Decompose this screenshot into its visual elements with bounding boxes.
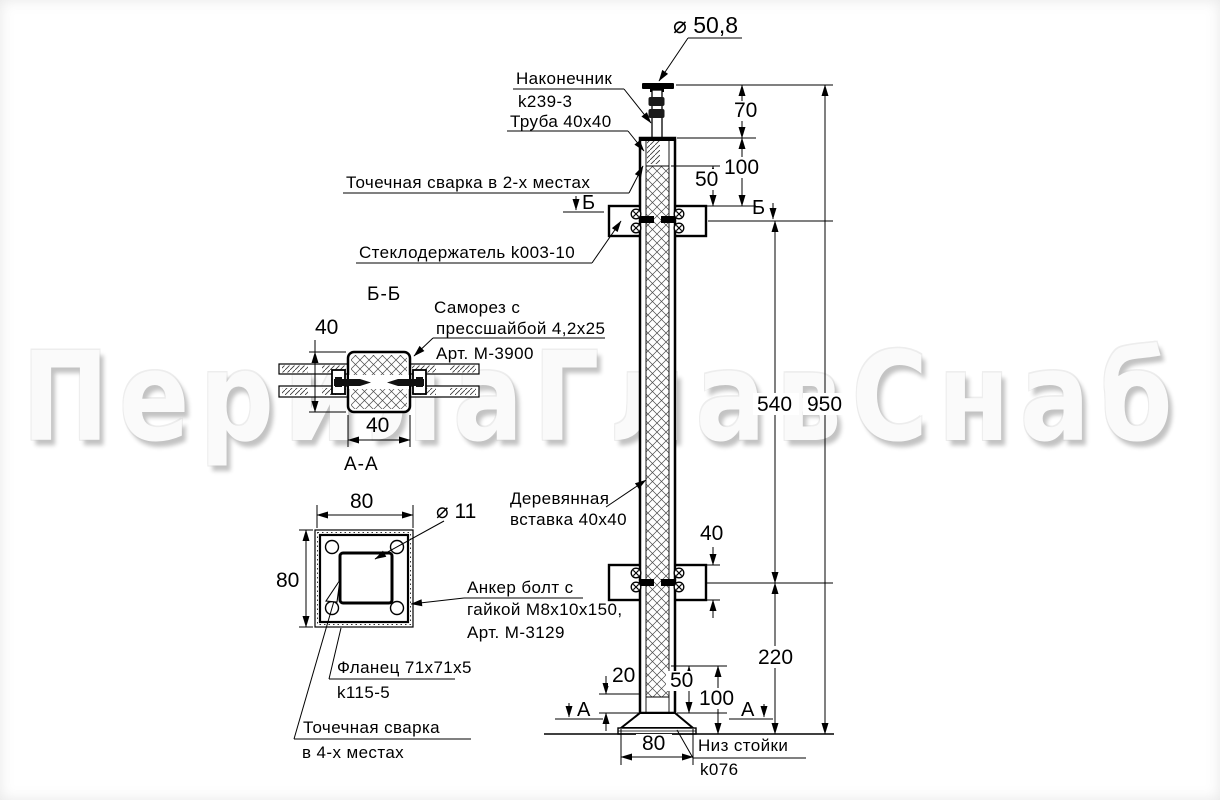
a-marker-right: А [741, 699, 755, 721]
callout-anchor-2: гайкой М8x10x150, [467, 600, 623, 619]
callout-spot-weld-2: Точечная сварка в 2-х местах [346, 173, 590, 192]
wooden-insert [647, 166, 669, 697]
callout-screw-2: прессшайбой 4,2x25 [436, 319, 605, 338]
bb-dim-40-horizontal: 40 [366, 414, 389, 437]
knurled-ring [649, 97, 665, 106]
weld-hatch [647, 141, 660, 164]
aa-dim-80-top: 80 [350, 490, 373, 513]
dim-100-bottom: 100 [699, 687, 734, 710]
callout-wood-2: вставка 40x40 [510, 510, 627, 529]
dim-540: 540 [757, 393, 792, 416]
dim-70: 70 [734, 99, 757, 122]
dim-50-top: 50 [695, 168, 718, 191]
dim-40-holder: 40 [700, 522, 723, 545]
dim-20: 20 [612, 664, 635, 687]
drawing-canvas: 70 100 50 540 950 220 40 20 50 100 80 Б [0, 0, 1220, 800]
flange-tube-section [340, 553, 392, 603]
knurled-ring [649, 109, 665, 118]
callout-anchor-3: Арт. М-3129 [467, 623, 565, 642]
dimension-lines-right: 70 100 50 540 950 220 40 20 50 100 80 [599, 85, 849, 765]
callout-screw-3: Арт. М-3900 [436, 344, 534, 363]
callout-bottom-2: k076 [700, 760, 738, 779]
callout-spot-weld-4-1: Точечная сварка [303, 718, 440, 737]
callout-glass-holder: Стеклодержатель k003-10 [359, 243, 575, 262]
section-bb-view: Б-Б [279, 284, 605, 447]
callout-anchor-1: Анкер болт с [467, 578, 574, 597]
dim-50-bottom: 50 [670, 669, 693, 692]
callout-bottom-1: Низ стойки [698, 736, 788, 755]
dim-80-base: 80 [642, 732, 665, 755]
technical-drawing-page: ПерилаГлавСнаб [0, 0, 1220, 800]
callout-tip-1: Наконечник [516, 69, 612, 88]
callout-spot-weld-4-2: в 4-х местах [302, 743, 404, 762]
bb-dim-40-vertical: 40 [315, 316, 338, 339]
a-marker-left: А [577, 699, 591, 721]
callout-flange-1: Фланец 71x71x5 [337, 658, 472, 677]
base-cover [621, 713, 693, 728]
aa-dim-80-left: 80 [276, 569, 299, 592]
section-bb-title: Б-Б [367, 284, 401, 305]
aa-dim-hole: ⌀ 11 [436, 500, 476, 523]
callout-tip-2: k239-3 [518, 92, 572, 111]
dim-100-top: 100 [724, 156, 759, 179]
callout-wood-1: Деревянная [510, 489, 609, 508]
b-marker-right: Б [752, 197, 765, 219]
dim-220: 220 [758, 646, 793, 669]
callout-screw-1: Саморез с [434, 298, 520, 317]
callout-flange-2: k115-5 [337, 683, 390, 702]
b-marker-left: Б [582, 192, 595, 214]
top-saddle-disk [642, 83, 674, 89]
callout-tube: Труба 40x40 [510, 112, 612, 131]
section-aa-title: А-А [344, 454, 379, 475]
dim-top-diameter: ⌀ 50,8 [673, 12, 738, 38]
dim-950: 950 [807, 393, 842, 416]
